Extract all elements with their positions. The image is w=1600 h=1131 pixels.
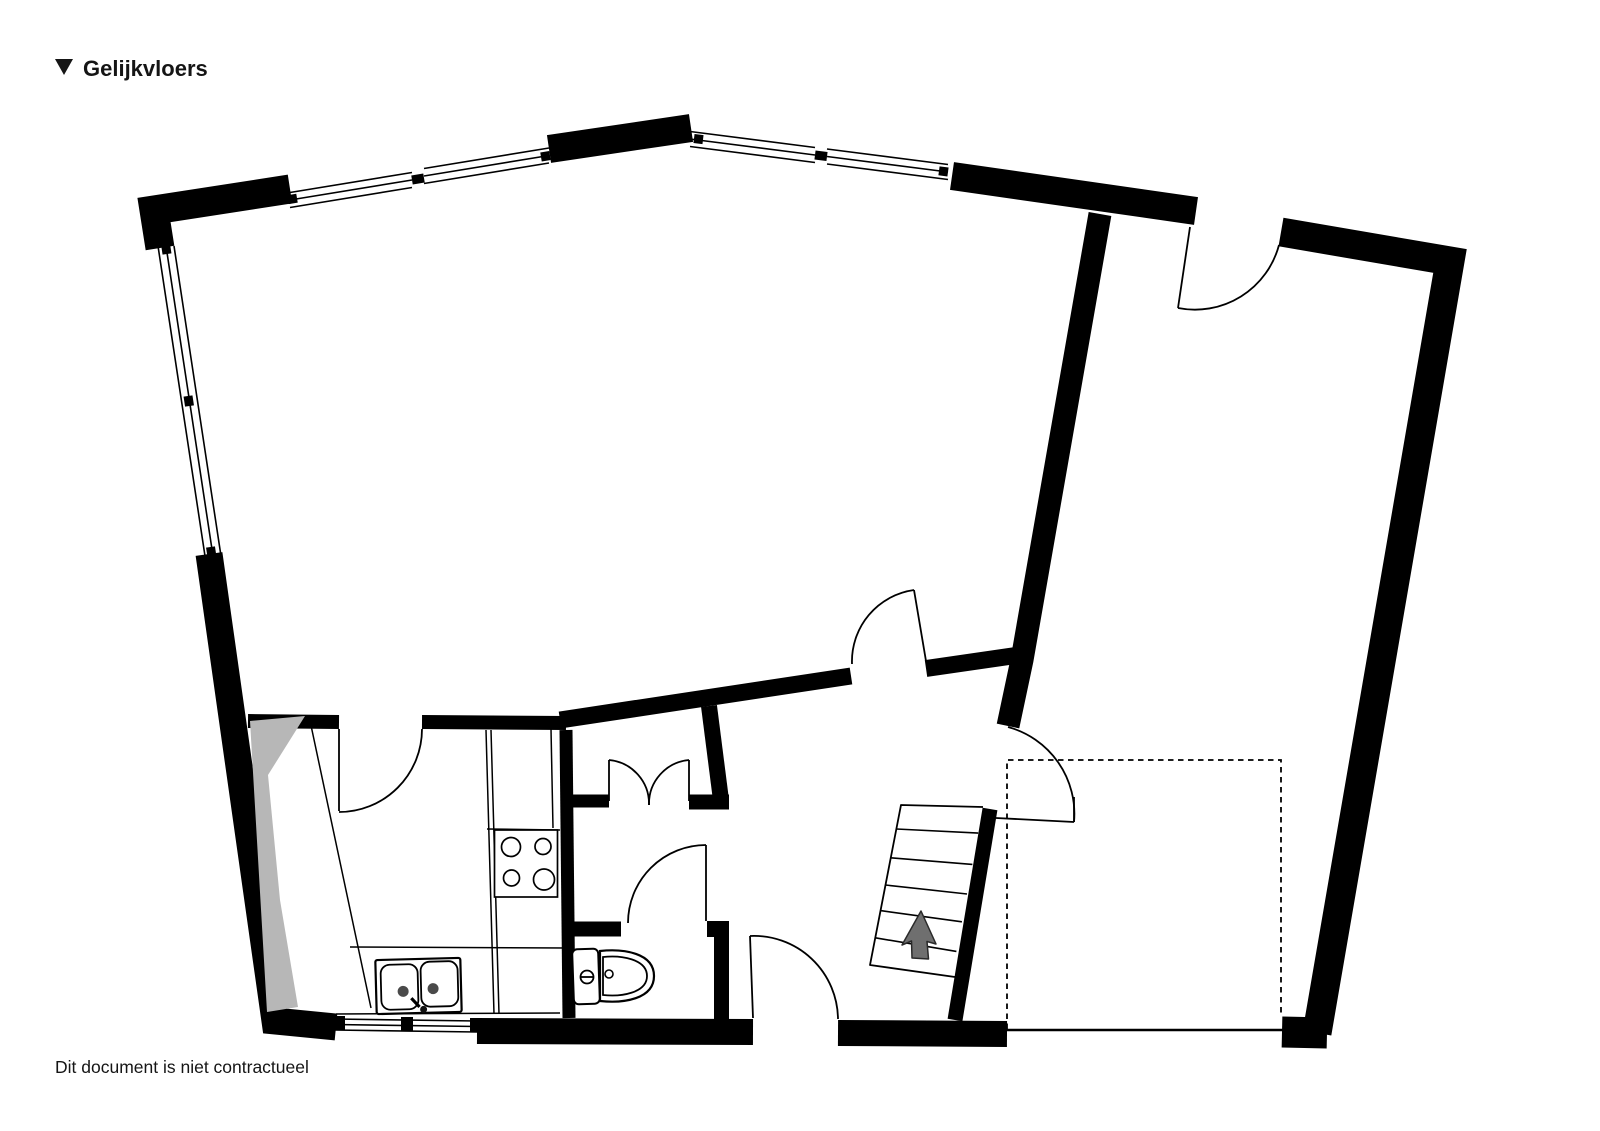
svg-text:Dit document is niet contractu: Dit document is niet contractueel — [55, 1057, 309, 1077]
svg-text:Gelijkvloers: Gelijkvloers — [83, 56, 208, 81]
